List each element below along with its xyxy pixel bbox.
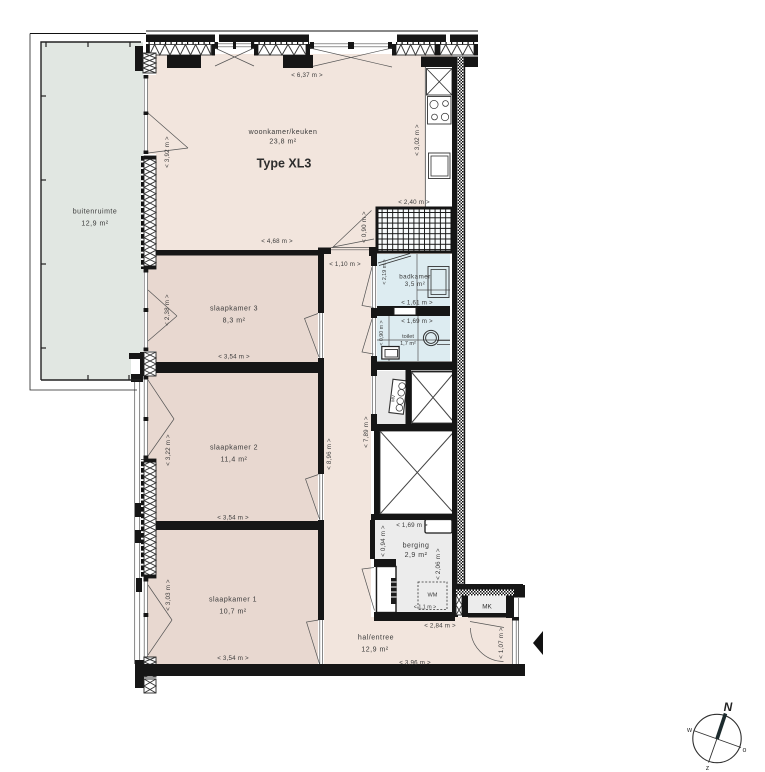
svg-text:2,9 m²: 2,9 m² (405, 552, 428, 559)
svg-text:< 3,22 m >: < 3,22 m > (165, 434, 172, 466)
svg-text:< 2,19 m >: < 2,19 m > (382, 259, 388, 284)
svg-text:slaapkamer 3: slaapkamer 3 (210, 306, 258, 313)
svg-text:< 1,69 m >: < 1,69 m > (396, 522, 428, 529)
svg-text:w: w (686, 727, 693, 734)
svg-text:< 0,94 m >: < 0,94 m > (380, 525, 387, 557)
svg-text:< 6,37 m >: < 6,37 m > (291, 72, 323, 79)
svg-text:< 1,69 m >: < 1,69 m > (401, 318, 433, 325)
svg-text:< 1,07 m >: < 1,07 m > (498, 627, 505, 659)
svg-text:1,7 m²: 1,7 m² (400, 341, 416, 347)
svg-text:< 2,40 m >: < 2,40 m > (398, 199, 430, 206)
svg-text:12,9 m²: 12,9 m² (361, 647, 388, 654)
svg-text:11,4 m²: 11,4 m² (221, 457, 248, 464)
svg-text:Type XL3: Type XL3 (257, 157, 312, 171)
svg-text:12,9 m²: 12,9 m² (81, 221, 108, 228)
svg-text:toilet: toilet (402, 334, 414, 340)
svg-text:berging: berging (403, 543, 430, 550)
svg-text:buitenruimte: buitenruimte (73, 209, 118, 216)
svg-text:z: z (706, 765, 710, 772)
svg-text:o: o (743, 747, 747, 754)
svg-text:< 2,38 m >: < 2,38 m > (164, 294, 171, 326)
svg-text:badkamer: badkamer (399, 274, 431, 281)
svg-text:< 3,92 m >: < 3,92 m > (164, 136, 171, 168)
svg-text:< 3,03 m >: < 3,03 m > (165, 579, 172, 611)
svg-text:woonkamer/keuken: woonkamer/keuken (248, 129, 318, 136)
svg-text:hal/entree: hal/entree (358, 635, 394, 642)
svg-text:slaapkamer 1: slaapkamer 1 (209, 597, 257, 604)
svg-text:WM: WM (428, 593, 438, 599)
svg-text:< 3,54 m >: < 3,54 m > (217, 655, 249, 662)
svg-text:< 1,10 m >: < 1,10 m > (329, 261, 361, 268)
svg-text:N: N (724, 700, 733, 714)
svg-text:< 1,61 m >: < 1,61 m > (401, 300, 433, 307)
svg-text:MK: MK (482, 604, 492, 611)
svg-text:< 3,54 m >: < 3,54 m > (218, 354, 250, 361)
svg-text:< 3,02 m >: < 3,02 m > (414, 124, 421, 156)
svg-text:< 2,06 m >: < 2,06 m > (435, 548, 442, 580)
svg-text:< 3,96 m >: < 3,96 m > (399, 660, 431, 667)
svg-text:8,3 m²: 8,3 m² (223, 318, 246, 325)
svg-text:3,5 m²: 3,5 m² (405, 281, 426, 288)
svg-text:10,7 m²: 10,7 m² (219, 609, 246, 616)
svg-text:MV: MV (390, 395, 396, 402)
svg-text:< 2,84 m >: < 2,84 m > (424, 623, 456, 630)
svg-text:< 8,96 m >: < 8,96 m > (326, 438, 333, 470)
svg-text:23,8 m²: 23,8 m² (269, 139, 296, 146)
svg-text:< 0,90 m >: < 0,90 m > (361, 211, 368, 243)
svg-text:< 3,54 m >: < 3,54 m > (217, 515, 249, 522)
svg-text:< 4,68 m >: < 4,68 m > (261, 238, 293, 245)
svg-text:slaapkamer 2: slaapkamer 2 (210, 445, 258, 452)
svg-text:< 1,1 m >: < 1,1 m > (414, 605, 436, 611)
svg-text:< 7,89 m >: < 7,89 m > (363, 416, 370, 448)
svg-text:< 0,90 m >: < 0,90 m > (379, 320, 385, 345)
